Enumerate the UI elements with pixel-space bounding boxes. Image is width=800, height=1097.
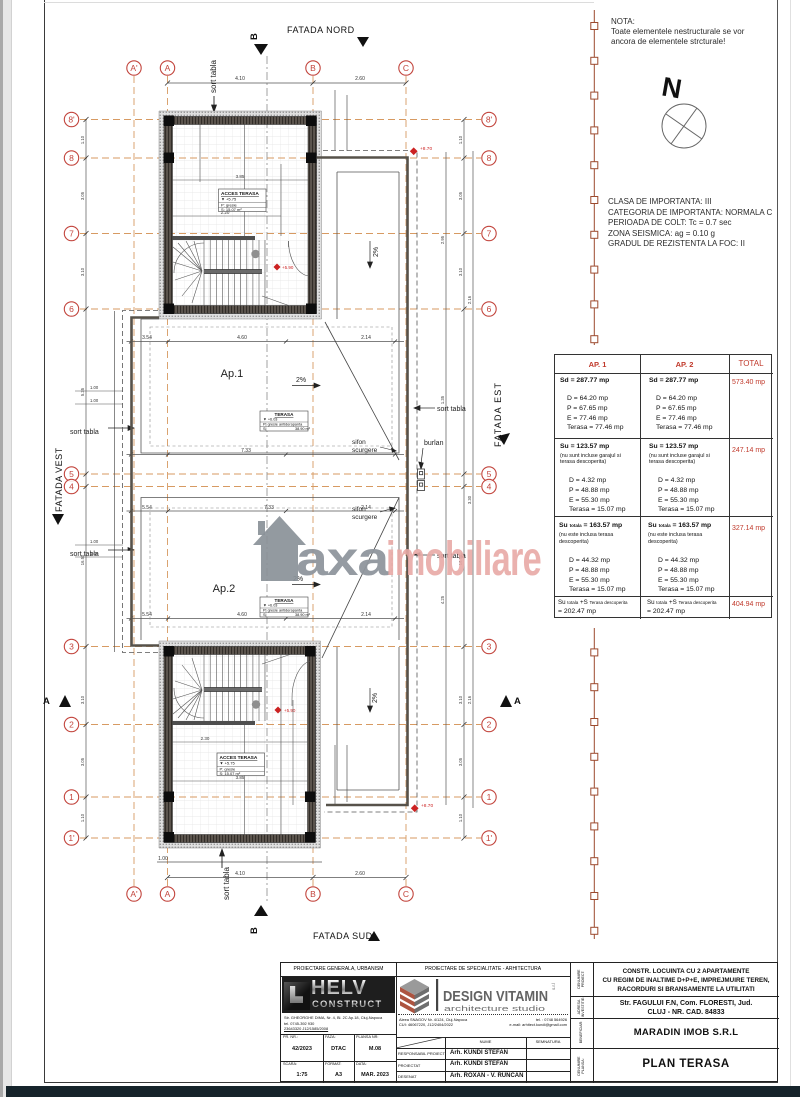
svg-text:4: 4 [69, 482, 74, 492]
svg-text:4: 4 [487, 482, 492, 492]
svg-text:▼ +5.75: ▼ +5.75 [220, 761, 236, 766]
svg-text:5.54: 5.54 [142, 612, 152, 618]
svg-text:sifon: sifon [352, 439, 366, 446]
svg-text:1.00: 1.00 [158, 856, 168, 862]
svg-text:7: 7 [487, 229, 492, 239]
svg-text:▼ +5.75: ▼ +5.75 [221, 197, 237, 202]
svg-text:38.90 m²: 38.90 m² [295, 427, 311, 431]
svg-text:+8.70: +8.70 [421, 803, 433, 809]
svg-text:2%: 2% [296, 377, 306, 384]
svg-text:1.00: 1.00 [90, 539, 99, 544]
svg-text:FATADA VEST: FATADA VEST [54, 447, 64, 512]
svg-text:3.10: 3.10 [458, 267, 463, 276]
svg-text:38.90 m²: 38.90 m² [295, 613, 311, 617]
svg-text:DESIGN VITAMIN: DESIGN VITAMIN [443, 988, 548, 1005]
svg-text:4.25: 4.25 [440, 595, 445, 604]
svg-text:4.60: 4.60 [237, 612, 247, 618]
svg-text:Ap.2: Ap.2 [213, 583, 236, 595]
svg-text:architecture studio: architecture studio [444, 1004, 545, 1013]
svg-text:sort tabla: sort tabla [70, 429, 99, 436]
svg-text:A: A [165, 63, 171, 73]
svg-text:1: 1 [487, 792, 492, 802]
svg-text:1.10: 1.10 [458, 135, 463, 144]
svg-text:1.00: 1.00 [90, 398, 99, 403]
svg-text:sort tabla: sort tabla [437, 406, 466, 413]
svg-text:1': 1' [486, 833, 493, 843]
svg-text:3.05: 3.05 [458, 191, 463, 200]
svg-text:2.16: 2.16 [467, 695, 472, 704]
svg-text:3.54: 3.54 [142, 335, 152, 341]
svg-text:FATADA SUD: FATADA SUD [313, 931, 373, 941]
svg-text:▼ +6.03: ▼ +6.03 [263, 604, 277, 608]
svg-text:5: 5 [69, 469, 74, 479]
svg-text:B: B [249, 33, 260, 40]
svg-text:S: 15.07 m²: S: 15.07 m² [221, 207, 242, 212]
svg-text:8: 8 [69, 153, 74, 163]
svg-text:A': A' [130, 63, 138, 73]
svg-text:2: 2 [69, 720, 74, 730]
svg-text:burlan: burlan [424, 440, 444, 447]
svg-text:8: 8 [487, 153, 492, 163]
svg-text:1.00: 1.00 [90, 551, 99, 556]
svg-text:S: 15.07 m²: S: 15.07 m² [220, 771, 241, 776]
svg-text:+8.70: +8.70 [420, 146, 432, 152]
svg-text:4.10: 4.10 [235, 871, 245, 877]
svg-text:6: 6 [487, 304, 492, 314]
svg-text:sort tabla: sort tabla [222, 867, 231, 900]
svg-text:1': 1' [68, 833, 75, 843]
svg-text:FATADA NORD: FATADA NORD [287, 25, 355, 35]
svg-text:sort tabla: sort tabla [209, 60, 218, 93]
svg-text:1.10: 1.10 [80, 135, 85, 144]
svg-text:4.10: 4.10 [235, 76, 245, 82]
svg-text:3.10: 3.10 [458, 695, 463, 704]
svg-text:+5.90: +5.90 [284, 708, 296, 713]
svg-text:N: N [660, 71, 684, 104]
svg-text:B: B [310, 889, 316, 899]
svg-text:6: 6 [69, 304, 74, 314]
svg-text:1.10: 1.10 [80, 813, 85, 822]
svg-text:axa: axa [296, 533, 390, 586]
svg-text:S|: S| [263, 613, 267, 617]
svg-text:3.05: 3.05 [80, 191, 85, 200]
svg-text:▼ +6.03: ▼ +6.03 [263, 418, 277, 422]
svg-text:1.35: 1.35 [440, 395, 445, 404]
svg-text:3.85: 3.85 [236, 174, 245, 179]
svg-text:A: A [43, 696, 50, 707]
svg-text:3: 3 [69, 642, 74, 652]
svg-text:2.95: 2.95 [440, 235, 445, 244]
svg-text:2%: 2% [373, 247, 380, 257]
svg-text:5: 5 [487, 469, 492, 479]
svg-text:1: 1 [69, 792, 74, 802]
svg-text:2.16: 2.16 [467, 295, 472, 304]
svg-text:TERASA: TERASA [275, 598, 295, 603]
svg-text:A: A [514, 696, 521, 707]
svg-text:3.05: 3.05 [458, 757, 463, 766]
svg-text:2.60: 2.60 [355, 76, 365, 82]
svg-text:P| gresie antiderapanta: P| gresie antiderapanta [263, 423, 303, 427]
svg-text:3.30: 3.30 [467, 495, 472, 504]
svg-text:7: 7 [69, 229, 74, 239]
svg-text:3.10: 3.10 [80, 695, 85, 704]
svg-text:2.14: 2.14 [361, 612, 371, 618]
svg-text:scurgere: scurgere [352, 447, 378, 454]
svg-text:A': A' [130, 889, 138, 899]
svg-text:Ap.1: Ap.1 [221, 368, 244, 380]
svg-text:scurgere: scurgere [352, 514, 378, 521]
svg-text:P| gresie antiderapanta: P| gresie antiderapanta [263, 609, 303, 613]
svg-text:B: B [249, 927, 260, 934]
svg-text:2.60: 2.60 [355, 871, 365, 877]
svg-text:2.14: 2.14 [361, 335, 371, 341]
svg-text:4.60: 4.60 [237, 335, 247, 341]
svg-text:2: 2 [487, 720, 492, 730]
svg-text:s.r.l: s.r.l [551, 983, 556, 990]
svg-text:1.00: 1.00 [90, 385, 99, 390]
svg-text:8': 8' [68, 115, 75, 125]
svg-text:2%: 2% [372, 693, 379, 703]
svg-text:+5.90: +5.90 [282, 265, 294, 270]
svg-text:3.10: 3.10 [80, 267, 85, 276]
svg-text:sifon: sifon [352, 506, 366, 513]
svg-text:2.30: 2.30 [201, 736, 210, 741]
svg-text:B: B [310, 63, 316, 73]
svg-text:TERASA: TERASA [275, 412, 295, 417]
svg-text:1.10: 1.10 [458, 813, 463, 822]
svg-text:3.05: 3.05 [80, 757, 85, 766]
svg-text:8': 8' [486, 115, 493, 125]
svg-text:C: C [403, 889, 409, 899]
svg-text:5.35: 5.35 [80, 387, 85, 396]
svg-text:C: C [403, 63, 409, 73]
svg-text:3: 3 [487, 642, 492, 652]
svg-text:S|: S| [263, 427, 267, 431]
svg-text:imobiliare: imobiliare [386, 533, 541, 586]
svg-text:A: A [165, 889, 171, 899]
